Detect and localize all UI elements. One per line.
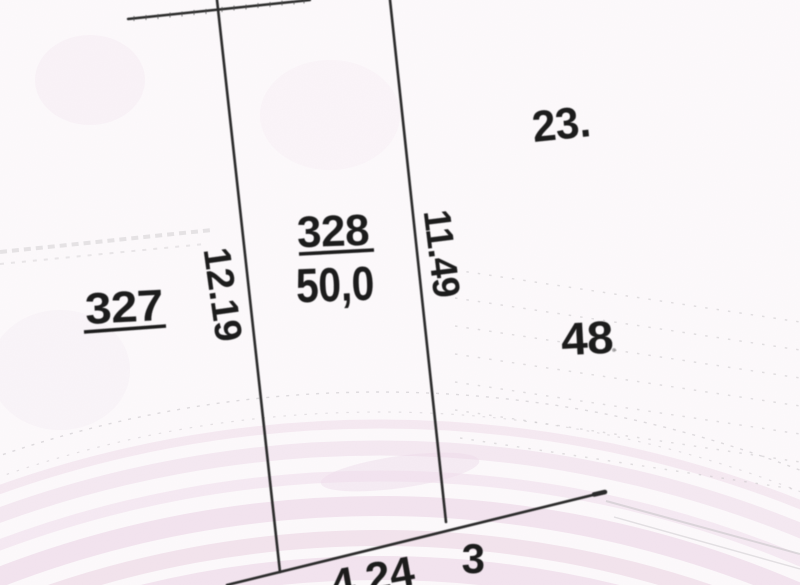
adjacent-parcel-topright-label: 23. [530,97,593,152]
adjacent-parcel-bottomright-label: 3 [462,535,485,582]
cadastral-extract: 328 50,0 12.19 11.49 4.24 327 23. 48 3 [0,0,800,585]
faint-dot [612,348,616,352]
parcel-area-label: 50,0 [295,258,375,314]
adjacent-parcel-right-label: 48 [560,311,615,366]
road-edge-line-end [594,492,605,495]
cadastral-map: 328 50,0 12.19 11.49 4.24 327 23. 48 3 [0,0,800,585]
